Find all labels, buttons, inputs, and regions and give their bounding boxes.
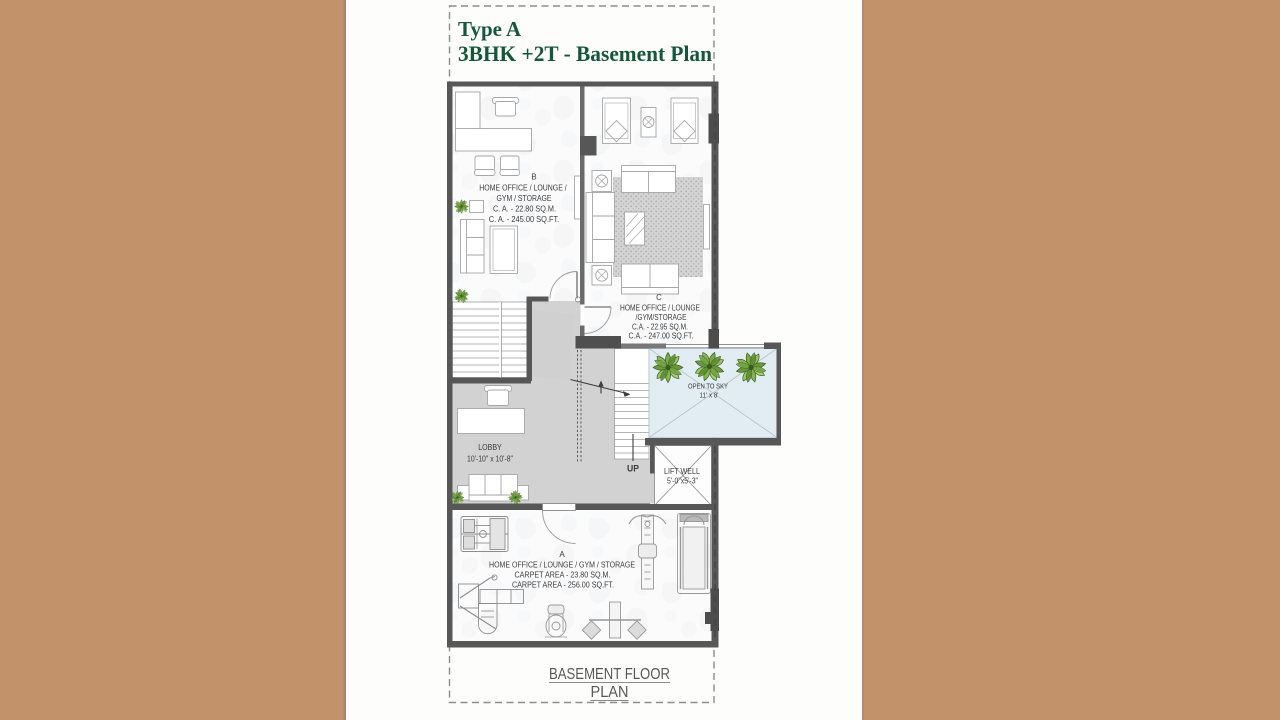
svg-text:C.A. - 247.00 SQ.FT.: C.A. - 247.00 SQ.FT. [629,332,694,341]
svg-text:CARPET AREA - 256.00 SQ.FT.: CARPET AREA - 256.00 SQ.FT. [512,581,614,590]
svg-text:3BHK +2T - Basement Plan: 3BHK +2T - Basement Plan [458,41,712,66]
svg-text:5'-0"x5'-3": 5'-0"x5'-3" [667,477,698,486]
svg-text:Type A: Type A [458,17,522,41]
svg-text:B: B [531,173,536,182]
svg-text:11' x 8': 11' x 8' [700,391,720,400]
svg-text:/GYM/STORAGE: /GYM/STORAGE [636,313,687,322]
svg-text:BASEMENT FLOOR: BASEMENT FLOOR [549,666,670,683]
svg-text:C. A. - 22.80 SQ.M.: C. A. - 22.80 SQ.M. [493,205,556,214]
svg-text:UP: UP [627,464,639,474]
svg-text:HOME OFFICE / LOUNGE / GYM / S: HOME OFFICE / LOUNGE / GYM / STORAGE [489,561,635,570]
svg-text:HOME OFFICE / LOUNGE /: HOME OFFICE / LOUNGE / [479,184,567,193]
svg-text:PLAN: PLAN [591,684,629,701]
svg-text:CARPET AREA - 23.80 SQ.M.: CARPET AREA - 23.80 SQ.M. [515,571,611,580]
svg-text:LOBBY: LOBBY [478,442,502,452]
svg-text:10'-10" x 10'-8": 10'-10" x 10'-8" [467,455,513,464]
svg-text:C: C [656,293,662,302]
svg-text:C. A. - 245.00 SQ.FT.: C. A. - 245.00 SQ.FT. [489,215,560,224]
svg-text:GYM / STORAGE: GYM / STORAGE [497,194,552,203]
svg-text:OPEN TO SKY: OPEN TO SKY [688,382,728,391]
svg-text:HOME OFFICE / LOUNGE: HOME OFFICE / LOUNGE [620,304,700,313]
svg-text:LIFT WELL: LIFT WELL [664,466,700,476]
svg-text:A: A [559,550,565,559]
svg-text:C.A. - 22.95 SQ.M.: C.A. - 22.95 SQ.M. [632,323,688,332]
